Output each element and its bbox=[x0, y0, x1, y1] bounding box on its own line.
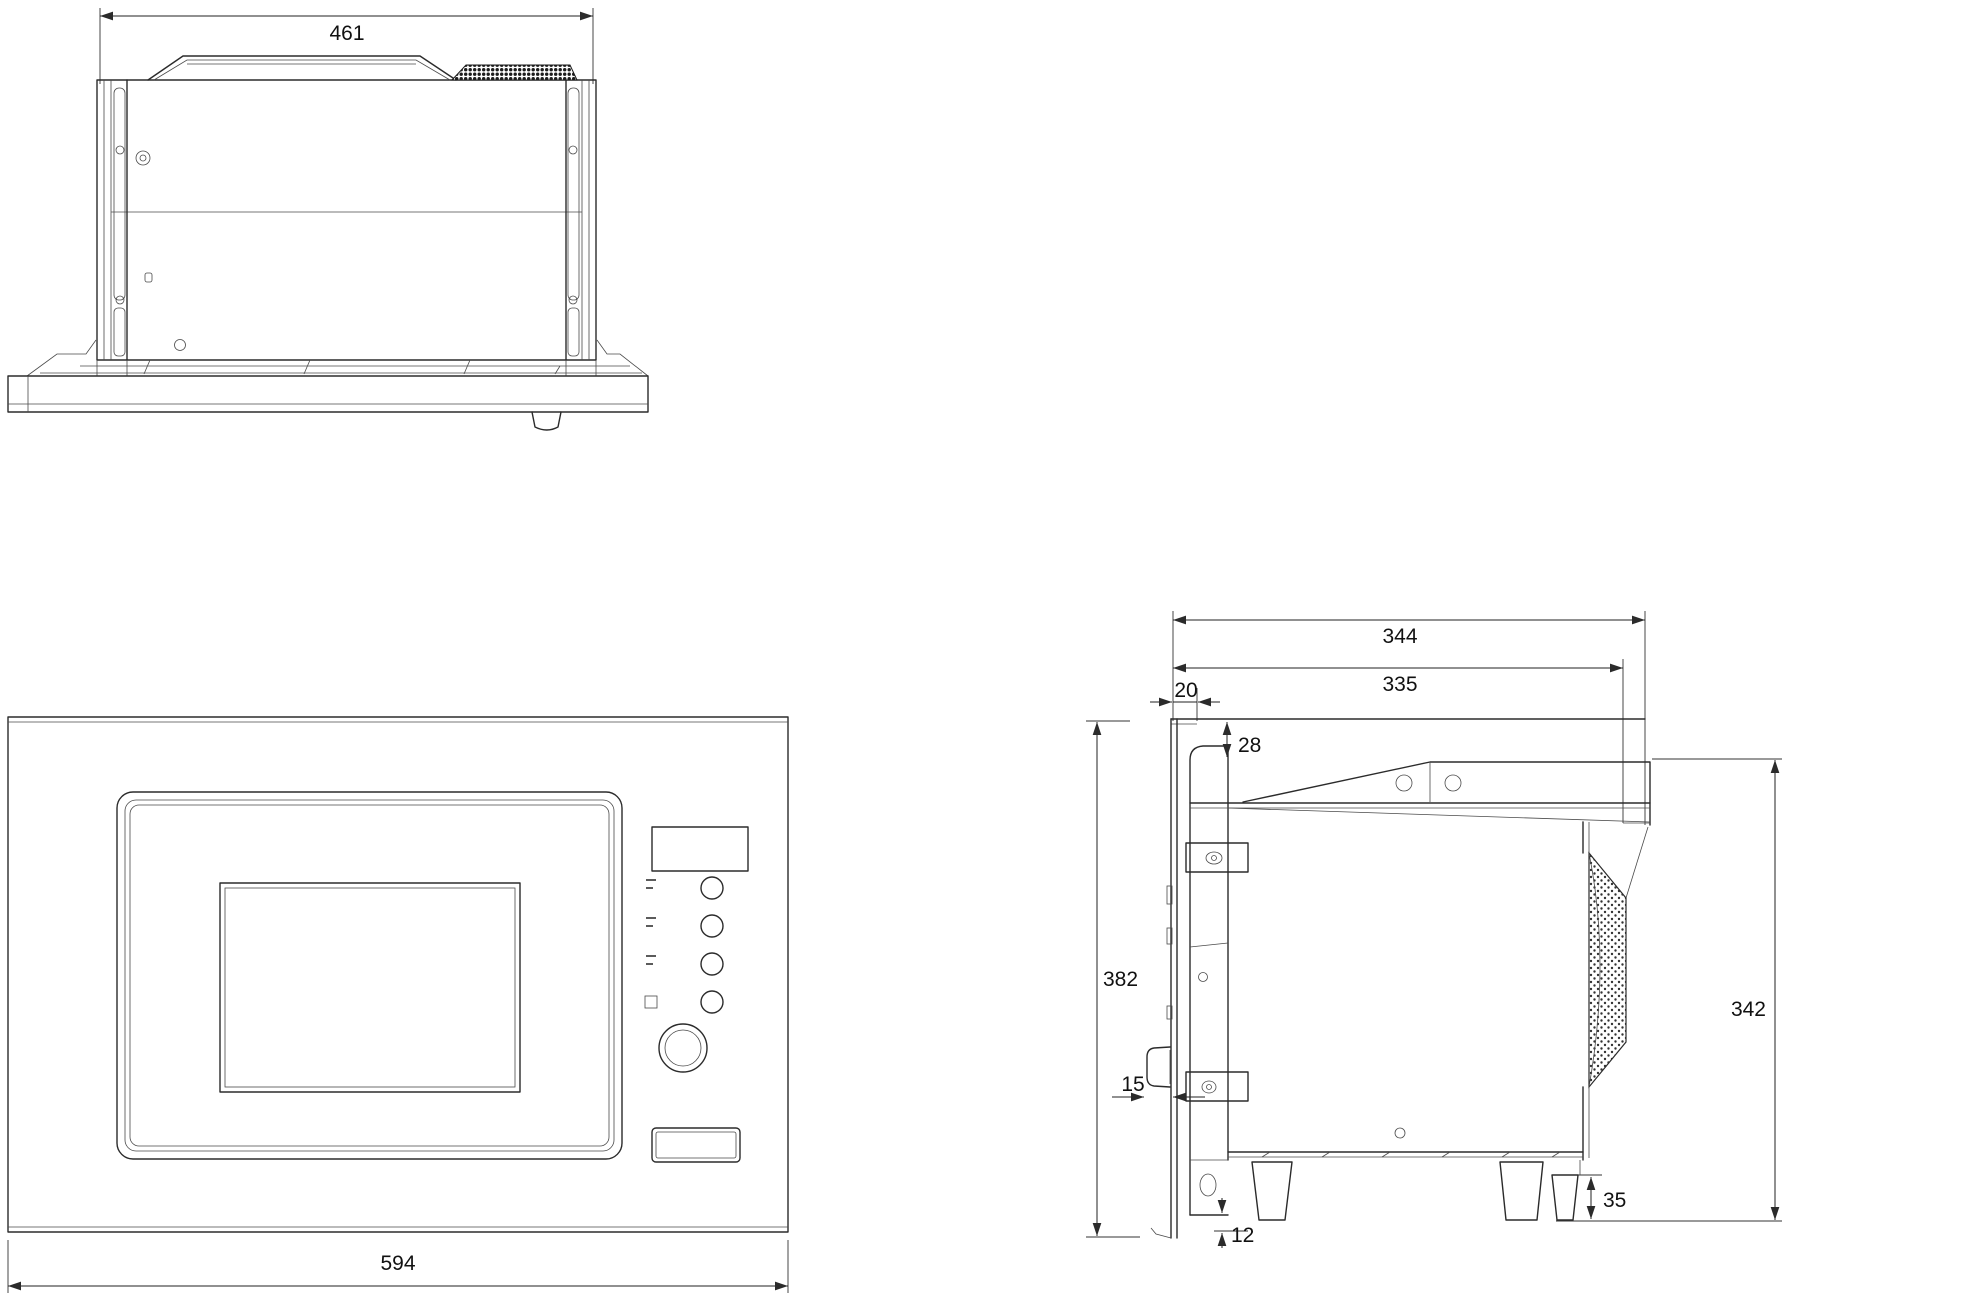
bracket-hole bbox=[1445, 775, 1461, 791]
side-dim-20: 20 bbox=[1150, 679, 1220, 721]
control-button-1 bbox=[701, 877, 723, 899]
rear-foot bbox=[1552, 1175, 1578, 1220]
display bbox=[652, 827, 748, 871]
dim-label-front-frame-depth: 20 bbox=[1174, 679, 1197, 702]
left-wedge bbox=[27, 340, 96, 376]
top-view-screws bbox=[116, 146, 577, 351]
control-button-2 bbox=[701, 915, 723, 937]
dim-label-top-clearance: 28 bbox=[1238, 734, 1261, 757]
side-dim-342: 342 bbox=[1652, 759, 1782, 1220]
front-mounting-plate bbox=[1147, 719, 1177, 1238]
bottom-screw bbox=[1395, 1128, 1405, 1138]
dim-label-rear-height: 342 bbox=[1731, 998, 1766, 1021]
control-button-3 bbox=[701, 953, 723, 975]
top-vent-grille bbox=[452, 65, 577, 80]
front-foot bbox=[1252, 1162, 1292, 1220]
mid-foot bbox=[1500, 1162, 1543, 1220]
side-dim-12: 12 bbox=[1214, 1198, 1254, 1248]
control-button-4 bbox=[701, 991, 723, 1013]
oven-body-side bbox=[1190, 762, 1650, 825]
front-view: 594 bbox=[8, 717, 788, 1293]
plate-knob bbox=[1147, 1047, 1170, 1087]
oven-door bbox=[117, 792, 622, 1159]
drawing-page: 461 bbox=[0, 0, 1980, 1297]
front-frame-strip bbox=[1190, 746, 1228, 1215]
side-dim-344: 344 bbox=[1173, 611, 1645, 825]
screw-hole bbox=[116, 146, 124, 154]
right-side-rail bbox=[566, 80, 589, 360]
dim-label-depth-overall: 344 bbox=[1382, 625, 1417, 648]
underside-and-feet bbox=[1228, 1128, 1782, 1221]
latch-stud bbox=[145, 273, 152, 282]
screw-hole bbox=[569, 146, 577, 154]
side-dim-382: 382 bbox=[1086, 721, 1140, 1237]
side-dim-28: 28 bbox=[1227, 722, 1261, 757]
left-side-rail bbox=[104, 80, 127, 360]
latch-brackets bbox=[1186, 843, 1248, 1101]
bracket-hole bbox=[1396, 775, 1412, 791]
trim-knob bbox=[532, 412, 561, 430]
technical-drawing-canvas: 461 bbox=[0, 0, 1980, 1297]
round-hole bbox=[175, 340, 186, 351]
side-dim-15: 15 bbox=[1112, 1073, 1205, 1097]
selector-square bbox=[645, 996, 657, 1008]
top-handle-plate bbox=[148, 56, 456, 80]
top-view-body-outline bbox=[97, 80, 596, 360]
frame-screw-hole bbox=[1199, 973, 1208, 982]
rotary-knob bbox=[659, 1024, 707, 1072]
dim-label-rear-foot-clearance: 35 bbox=[1603, 1189, 1626, 1212]
door-window bbox=[220, 883, 520, 1092]
top-view: 461 bbox=[8, 8, 648, 430]
niche-top-edge bbox=[1171, 719, 1645, 724]
rear-panel bbox=[1580, 822, 1648, 1175]
dim-label-frame-width: 594 bbox=[380, 1252, 415, 1275]
dim-label-frame-bottom-offset: 12 bbox=[1231, 1224, 1254, 1247]
dim-label-front-knob-protrusion: 15 bbox=[1121, 1073, 1144, 1096]
control-panel bbox=[645, 827, 748, 1162]
front-edge-band bbox=[27, 340, 648, 376]
door-open-button bbox=[652, 1128, 740, 1162]
side-dim-35: 35 bbox=[1552, 1175, 1626, 1219]
dim-label-body-width: 461 bbox=[329, 22, 364, 45]
front-view-dim-594: 594 bbox=[8, 1240, 788, 1293]
dim-label-depth-body: 335 bbox=[1382, 673, 1417, 696]
button-label-marks bbox=[646, 880, 656, 964]
bottom-trim-plate bbox=[8, 376, 648, 430]
washer-hole bbox=[136, 151, 150, 165]
side-view: 344 335 20 28 382 15 bbox=[1086, 611, 1782, 1248]
right-wedge bbox=[597, 340, 648, 376]
dim-label-frame-height: 382 bbox=[1103, 968, 1138, 991]
frame-oval-hole bbox=[1200, 1174, 1216, 1196]
